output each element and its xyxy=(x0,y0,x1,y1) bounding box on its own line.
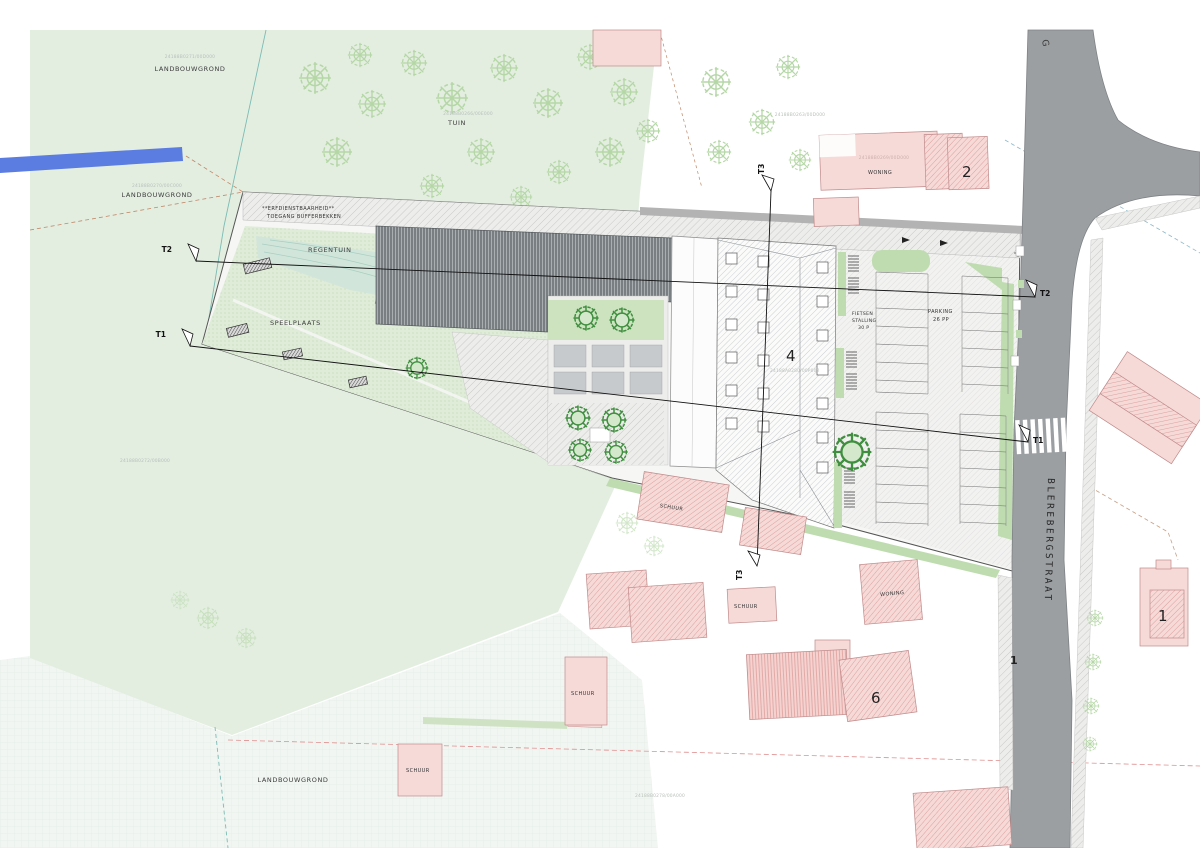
parking-green-island xyxy=(872,250,930,272)
building-6-west xyxy=(746,649,849,719)
landbouwgrond-w-label: LANDBOUWGROND xyxy=(121,191,192,199)
cadastral-code-woning-n: 24188B0269/00D000 xyxy=(859,155,909,161)
building-4-roof: 4 24188A0280/00P002 xyxy=(716,238,836,528)
speelplaats-label: SPEELPLAATS xyxy=(270,319,321,327)
number-6: 6 xyxy=(871,689,881,707)
landbouwgrond-nw-label: LANDBOUWGROND xyxy=(154,65,225,73)
cadastral-code-tuin: 24188B0266/00E000 xyxy=(443,111,493,117)
woning-north-label: WONING xyxy=(868,170,892,176)
barn-cluster-2 xyxy=(628,582,707,642)
building-6-east xyxy=(839,650,917,721)
number-2: 2 xyxy=(962,163,972,181)
road-verge-west xyxy=(998,575,1013,790)
white-building xyxy=(670,236,718,468)
t1-label-left: T1 xyxy=(156,330,166,339)
cadastral-code-w: 24188B0270/00C000 xyxy=(132,183,182,189)
building-1 xyxy=(1140,560,1188,646)
cadastral-code-ne: 24188B0263/00D000 xyxy=(775,112,825,118)
parking-label-2: 26 PP xyxy=(933,317,949,323)
t2-label-left: T2 xyxy=(162,245,172,254)
site-plan-canvas: 4 24188A0280/00P002 FIETSEN STALLING 30 … xyxy=(0,0,1200,848)
cadastral-code-west: 24188B0272/00B000 xyxy=(120,458,170,464)
bike-label-3: 30 P xyxy=(858,325,869,331)
t1-label-right: T1 xyxy=(1033,436,1043,445)
regentuin-label: REGENTUIN xyxy=(308,246,352,254)
schuur-label-c: SCHUUR xyxy=(571,691,595,697)
tree-icon xyxy=(406,357,428,379)
easement-label-2: TOEGANG BUFFERBEKKEN xyxy=(266,214,341,220)
t3-label-bottom: T3 xyxy=(735,570,744,580)
bike-label-1: FIETSEN xyxy=(852,311,873,317)
courtyard xyxy=(548,296,668,465)
tree-icon xyxy=(834,434,871,471)
schuur-label-b: SCHUUR xyxy=(734,604,758,610)
tuin-label: TUIN xyxy=(447,119,466,127)
site-plan: 4 24188A0280/00P002 FIETSEN STALLING 30 … xyxy=(0,0,1200,848)
landbouwgrond-s-label: LANDBOUWGROND xyxy=(257,776,328,784)
bike-label-2: STALLING xyxy=(852,318,877,324)
easement-label-1: **ERFDIENSTBAARHEID** xyxy=(262,206,335,212)
road-house-number: 1 xyxy=(1010,654,1018,667)
t3-label-top: T3 xyxy=(757,164,766,174)
courtyard-bench xyxy=(590,428,610,442)
schuur-label-d: SCHUUR xyxy=(406,768,430,774)
building-bottom-right xyxy=(913,787,1012,848)
number-1: 1 xyxy=(1158,607,1168,625)
t2-label-right: T2 xyxy=(1040,289,1050,298)
parking-surface xyxy=(836,234,1018,570)
cadastral-code-south: 24188B0278/00A000 xyxy=(635,793,685,799)
cadastral-code-nw: 24188B0271/00D000 xyxy=(165,54,215,60)
parking-label-1: PARKING xyxy=(928,309,953,315)
building-4-number: 4 xyxy=(786,347,796,365)
building-top xyxy=(593,30,661,66)
cadastral-code-center: 24188A0280/00P002 xyxy=(770,368,820,374)
